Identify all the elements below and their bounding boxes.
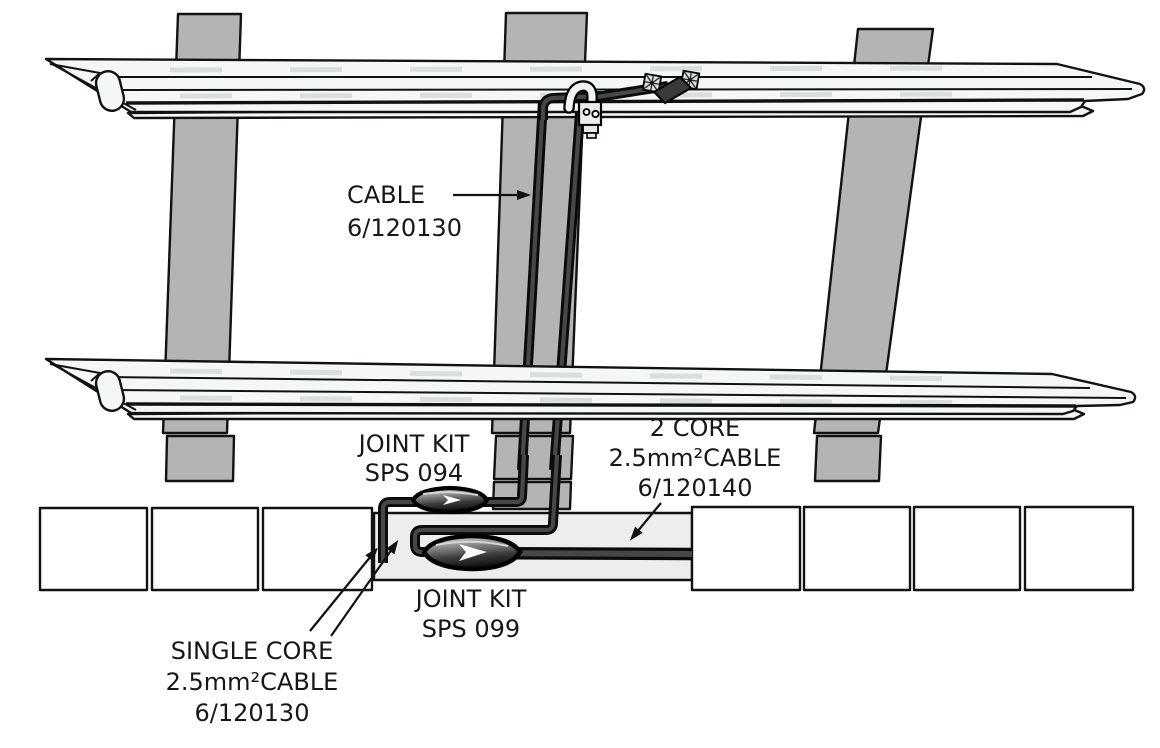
cable-label-line2: 6/120130: [347, 214, 462, 242]
joint-kit-bottom-line2: SPS 099: [422, 615, 520, 643]
single-core-line2: 2.5mm²CABLE: [166, 668, 339, 696]
two-core-cable-label: 2 CORE 2.5mm²CABLE 6/120140: [609, 414, 782, 502]
trough-box: [152, 508, 258, 590]
two-core-line3: 6/120140: [638, 474, 753, 502]
joint-kit-top-line1: JOINT KIT: [357, 430, 470, 458]
single-core-line3: 6/120130: [195, 699, 310, 727]
joint-kit-sps094: [413, 488, 487, 512]
cable-clamp-bracket: [579, 102, 601, 138]
joint-kit-top-line2: SPS 094: [365, 459, 463, 487]
trough-box: [1025, 507, 1133, 590]
joint-kit-sps094-label: JOINT KIT SPS 094: [357, 430, 470, 487]
sleeper-right-foot: [815, 436, 881, 481]
single-core-cable-label: SINGLE CORE 2.5mm²CABLE 6/120130: [166, 637, 339, 727]
cable-label-line1: CABLE: [347, 181, 425, 209]
two-core-line1: 2 CORE: [650, 414, 740, 442]
trough-box: [914, 507, 1020, 590]
joint-kit-sps099-label: JOINT KIT SPS 099: [414, 585, 527, 643]
trough-box: [804, 507, 910, 590]
trough-box: [692, 507, 800, 590]
trough-box: [40, 508, 147, 590]
rail-bottom: [46, 359, 1135, 419]
joint-kit-bottom-line1: JOINT KIT: [414, 585, 527, 613]
sleeper-left-foot: [166, 436, 234, 481]
cable-label: CABLE 6/120130: [347, 181, 462, 242]
labels: CABLE 6/120130 JOINT KIT SPS 094 2 CORE …: [166, 181, 782, 727]
trough-box: [263, 508, 372, 590]
rail-cable-installation-diagram: CABLE 6/120130 JOINT KIT SPS 094 2 CORE …: [0, 0, 1160, 748]
two-core-line2: 2.5mm²CABLE: [609, 444, 782, 472]
joint-kit-sps099: [424, 536, 520, 569]
single-core-line1: SINGLE CORE: [171, 637, 334, 665]
